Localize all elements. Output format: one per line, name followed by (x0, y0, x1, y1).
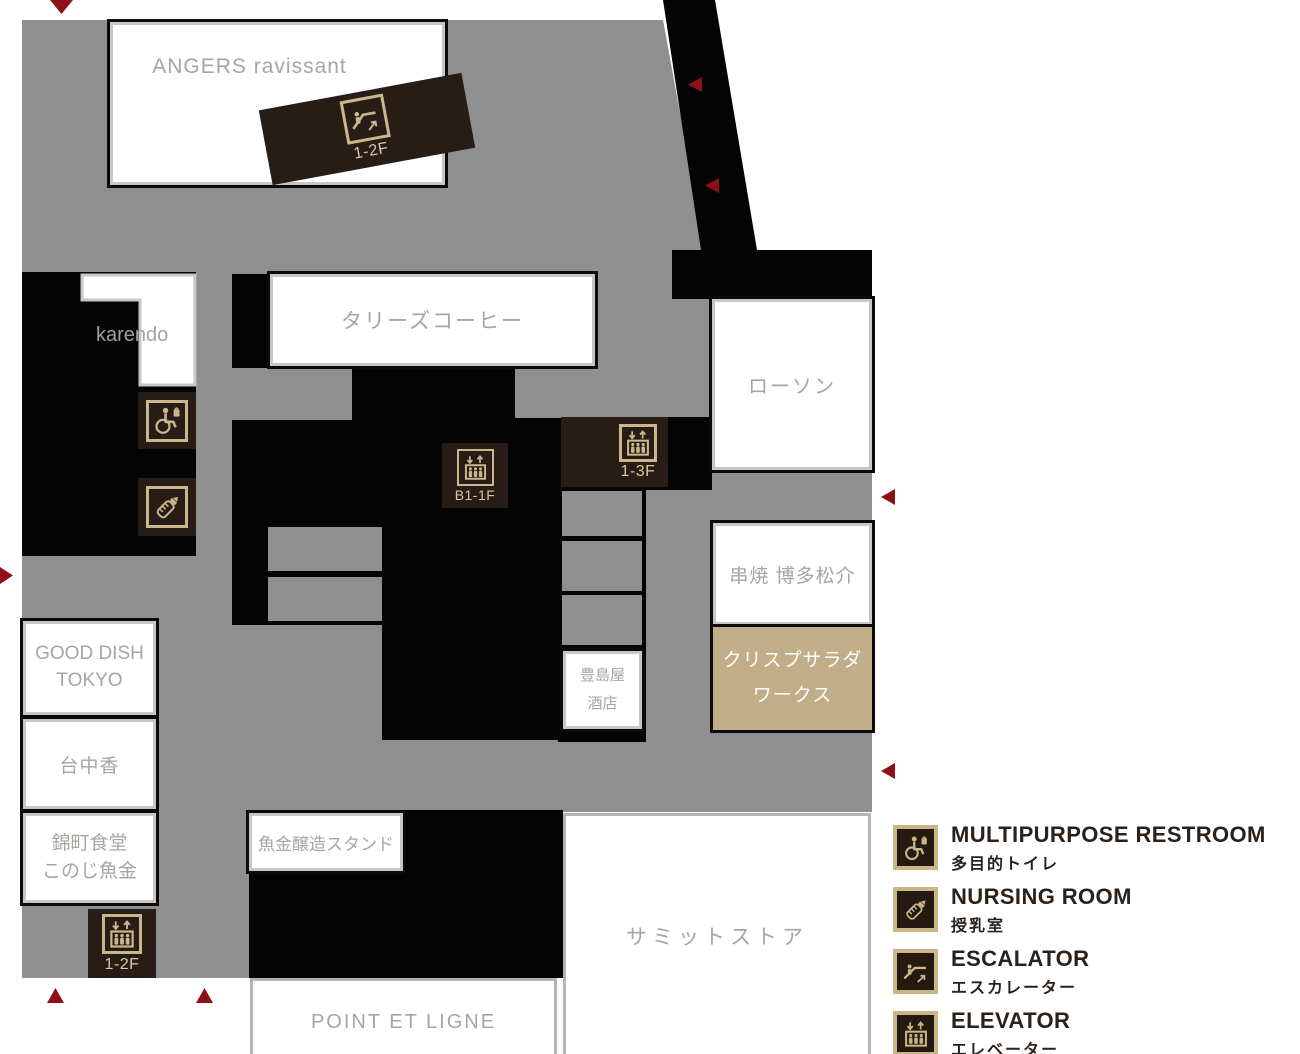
elevator-tile-b1-1f[interactable]: B1-1F (442, 443, 508, 508)
escalator-icon (340, 94, 391, 145)
elevator-tile-1-2f[interactable]: 1-2F (88, 909, 156, 978)
entrance-arrow-right-3 (881, 489, 895, 505)
store-crisp-label-line1: クリスプサラダ (722, 644, 862, 678)
store-summit-label: サミットストア (626, 921, 808, 951)
store-summit[interactable]: サミットストア (563, 813, 871, 1054)
store-angers-label: ANGERS ravissant (152, 55, 347, 79)
store-crisp-label-line2: ワークス (722, 679, 862, 713)
legend-title: ELEVATOR (951, 1009, 1070, 1032)
baby-bottle-icon (893, 887, 938, 932)
store-karendo-label[interactable]: karendo (96, 324, 168, 347)
legend-subtitle: 授乳室 (951, 912, 1132, 936)
floor-map: ANGERS ravissant karendo タリーズコーヒー ローソン 串… (0, 0, 1300, 1054)
store-nishikicho-label-line1: 錦町食堂 (42, 830, 137, 859)
store-taichuka[interactable]: 台中香 (23, 719, 156, 809)
entrance-arrow-bottom-2 (196, 988, 213, 1003)
store-toshimaya-label-line1: 豊島屋 (580, 662, 625, 691)
store-nishikicho-label-line2: このじ魚金 (42, 858, 137, 887)
baby-bottle-icon (146, 486, 188, 528)
store-kushiyaki-label: 串焼 博多松介 (729, 561, 855, 588)
entrance-arrow-left (0, 567, 13, 584)
store-kushiyaki[interactable]: 串焼 博多松介 (713, 523, 872, 625)
escalator-icon (893, 949, 938, 994)
entrance-arrow-top (50, 0, 73, 14)
store-toshimaya[interactable]: 豊島屋 酒店 (563, 651, 642, 729)
legend-row-escalator: ESCALATOR エスカレーター (893, 949, 1089, 998)
entrance-arrow-bottom-1 (47, 988, 64, 1003)
store-taichuka-label: 台中香 (59, 751, 119, 778)
store-tullys-label: タリーズコーヒー (341, 305, 524, 335)
store-lawson[interactable]: ローソン (712, 299, 872, 470)
elevator-tile-label: 1-2F (105, 956, 140, 974)
store-uokin[interactable]: 魚金醸造スタンド (249, 813, 403, 871)
legend-row-elevator: ELEVATOR エレベーター (893, 1011, 1070, 1054)
wheelchair-icon (893, 825, 938, 870)
legend-title: NURSING ROOM (951, 885, 1132, 908)
escalator-tile-label: 1-2F (352, 140, 390, 164)
elevator-tile-label: B1-1F (455, 487, 496, 503)
multipurpose-restroom-tile[interactable] (138, 392, 196, 449)
store-tullys[interactable]: タリーズコーヒー (270, 274, 595, 366)
elevator-icon (619, 424, 657, 462)
store-crisp-salad-works[interactable]: クリスプサラダ ワークス (713, 627, 872, 730)
entrance-arrow-right-4 (881, 763, 895, 779)
legend-subtitle: エレベーター (951, 1036, 1070, 1054)
elevator-icon (893, 1011, 938, 1054)
nursing-room-tile[interactable] (138, 478, 196, 536)
legend-subtitle: 多目的トイレ (951, 850, 1266, 874)
elevator-icon (102, 914, 142, 954)
store-gooddish-label-line1: GOOD DISH (35, 641, 144, 668)
store-point-et-ligne[interactable]: POINT ET LIGNE (250, 978, 557, 1054)
legend-row-nursing-room: NURSING ROOM 授乳室 (893, 887, 1132, 936)
legend-title: ESCALATOR (951, 947, 1089, 970)
store-toshimaya-label-line2: 酒店 (580, 690, 625, 719)
store-nishikicho[interactable]: 錦町食堂 このじ魚金 (23, 813, 156, 903)
legend-row-multipurpose-restroom: MULTIPURPOSE RESTROOM 多目的トイレ (893, 825, 1266, 874)
store-lawson-label: ローソン (748, 370, 836, 399)
elevator-tile-label: 1-3F (621, 463, 656, 481)
store-uokin-label: 魚金醸造スタンド (258, 830, 394, 855)
store-point-label: POINT ET LIGNE (311, 1011, 496, 1034)
legend-subtitle: エスカレーター (951, 974, 1089, 998)
wheelchair-icon (146, 400, 188, 442)
elevator-icon (457, 449, 494, 486)
store-gooddish-label-line2: TOKYO (35, 668, 144, 695)
elevator-tile-1-3f[interactable]: 1-3F (561, 417, 668, 487)
legend-title: MULTIPURPOSE RESTROOM (951, 823, 1266, 846)
store-good-dish-tokyo[interactable]: GOOD DISH TOKYO (23, 621, 156, 715)
